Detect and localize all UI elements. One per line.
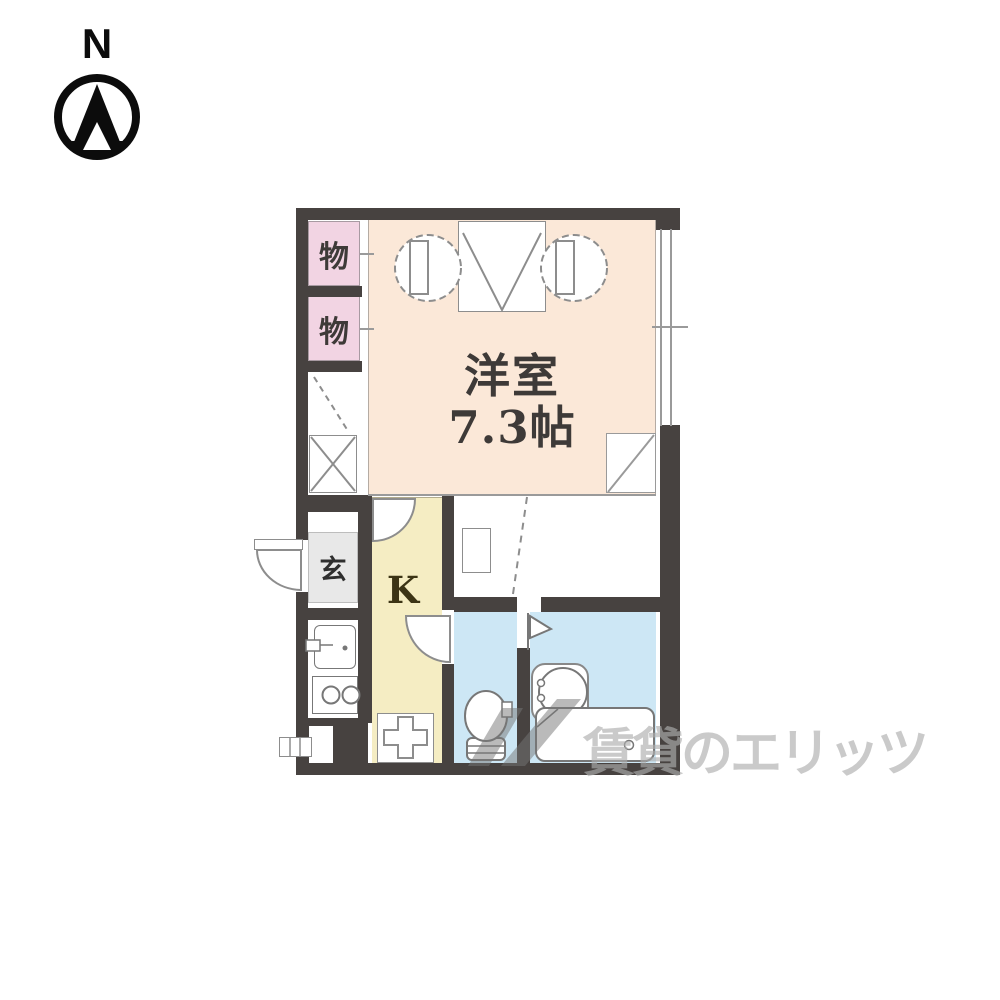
- plan-graphics: [0, 0, 1000, 1000]
- window-right: [652, 229, 688, 426]
- storage-1-door-tick: [360, 253, 374, 255]
- wall-kitchen-left: [358, 495, 372, 723]
- western-room-size-label: 7.3帖: [368, 398, 656, 448]
- storage-room-1-label: 物: [309, 222, 359, 285]
- floorplan-page: N 物 物 洋室 7.3帖 玄 K: [0, 0, 1000, 1000]
- entrance-room-label: 玄: [309, 533, 357, 602]
- upper-shelf-area: [308, 372, 360, 434]
- wall-top: [296, 208, 680, 220]
- wall-toilet-bath-divider: [517, 648, 530, 763]
- storage-room-2: 物: [308, 296, 360, 361]
- wash-basin-icon: [314, 625, 356, 669]
- crossed-box: [309, 435, 357, 493]
- corridor-counter: [462, 528, 491, 573]
- entrance-upper-strip: [308, 512, 358, 532]
- kitchen-room-label: K: [372, 565, 434, 615]
- service-door-panel: [279, 737, 312, 757]
- wall-below-storage: [306, 361, 362, 372]
- stove-icon: [312, 676, 358, 714]
- entry-door-arc: [257, 550, 301, 590]
- wall-above-entrance: [306, 495, 362, 512]
- compass-north-label: N: [72, 20, 122, 68]
- kitchen-sink-icon: [377, 713, 434, 763]
- wall-below-entrance: [306, 608, 360, 620]
- kitchen-door-opening: [442, 610, 454, 664]
- entrance-room: 玄: [308, 532, 358, 603]
- toilet-room: [454, 612, 517, 763]
- wall-top-right-corner: [656, 208, 680, 230]
- closet-symbol: [458, 221, 546, 312]
- dashed-corridor-line: [513, 497, 527, 594]
- storage-room-2-label: 物: [309, 297, 359, 360]
- wall-wet-area-top: [454, 597, 662, 612]
- storage-2-door-tick: [360, 328, 374, 330]
- bathroom-door-opening: [517, 597, 541, 612]
- wall-storage-divider: [306, 286, 362, 297]
- storage-room-1: 物: [308, 221, 360, 286]
- watermark-text: 賃貸のエリッツ: [583, 711, 926, 786]
- bottom-left-opening: [309, 726, 333, 763]
- western-room-bottom-edge: [368, 494, 656, 496]
- north-arrow-icon: [58, 78, 136, 158]
- entry-door-panel: [254, 539, 303, 550]
